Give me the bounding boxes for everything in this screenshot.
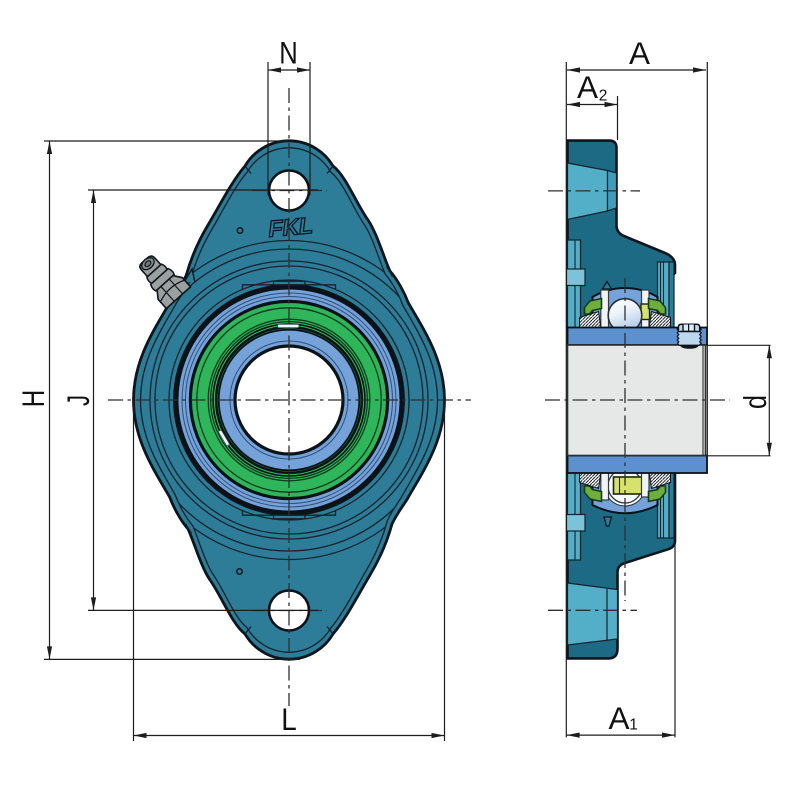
svg-text:L: L xyxy=(281,701,297,737)
svg-text:FKL: FKL xyxy=(267,212,315,242)
svg-text:J: J xyxy=(60,395,96,406)
svg-text:N: N xyxy=(279,35,298,71)
svg-text:H: H xyxy=(15,390,51,408)
svg-text:1: 1 xyxy=(629,717,638,734)
svg-text:d: d xyxy=(737,395,773,409)
svg-text:A: A xyxy=(577,69,598,105)
svg-text:A: A xyxy=(608,700,629,736)
svg-text:2: 2 xyxy=(599,88,608,105)
svg-text:A: A xyxy=(629,35,650,71)
